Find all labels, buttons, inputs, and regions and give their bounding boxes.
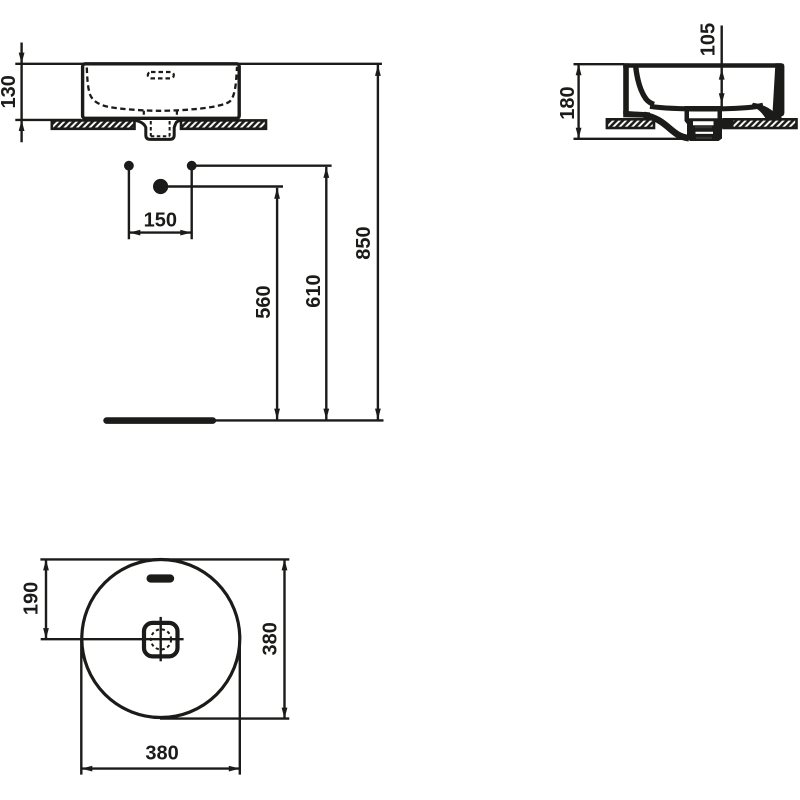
svg-text:850: 850: [353, 226, 375, 259]
svg-text:380: 380: [260, 622, 282, 655]
svg-text:130: 130: [0, 75, 20, 108]
svg-text:150: 150: [144, 210, 177, 232]
svg-text:180: 180: [557, 86, 579, 119]
svg-text:190: 190: [20, 582, 42, 615]
svg-text:105: 105: [697, 23, 719, 56]
svg-text:380: 380: [145, 743, 178, 765]
svg-text:560: 560: [253, 285, 275, 318]
svg-text:610: 610: [303, 274, 325, 307]
